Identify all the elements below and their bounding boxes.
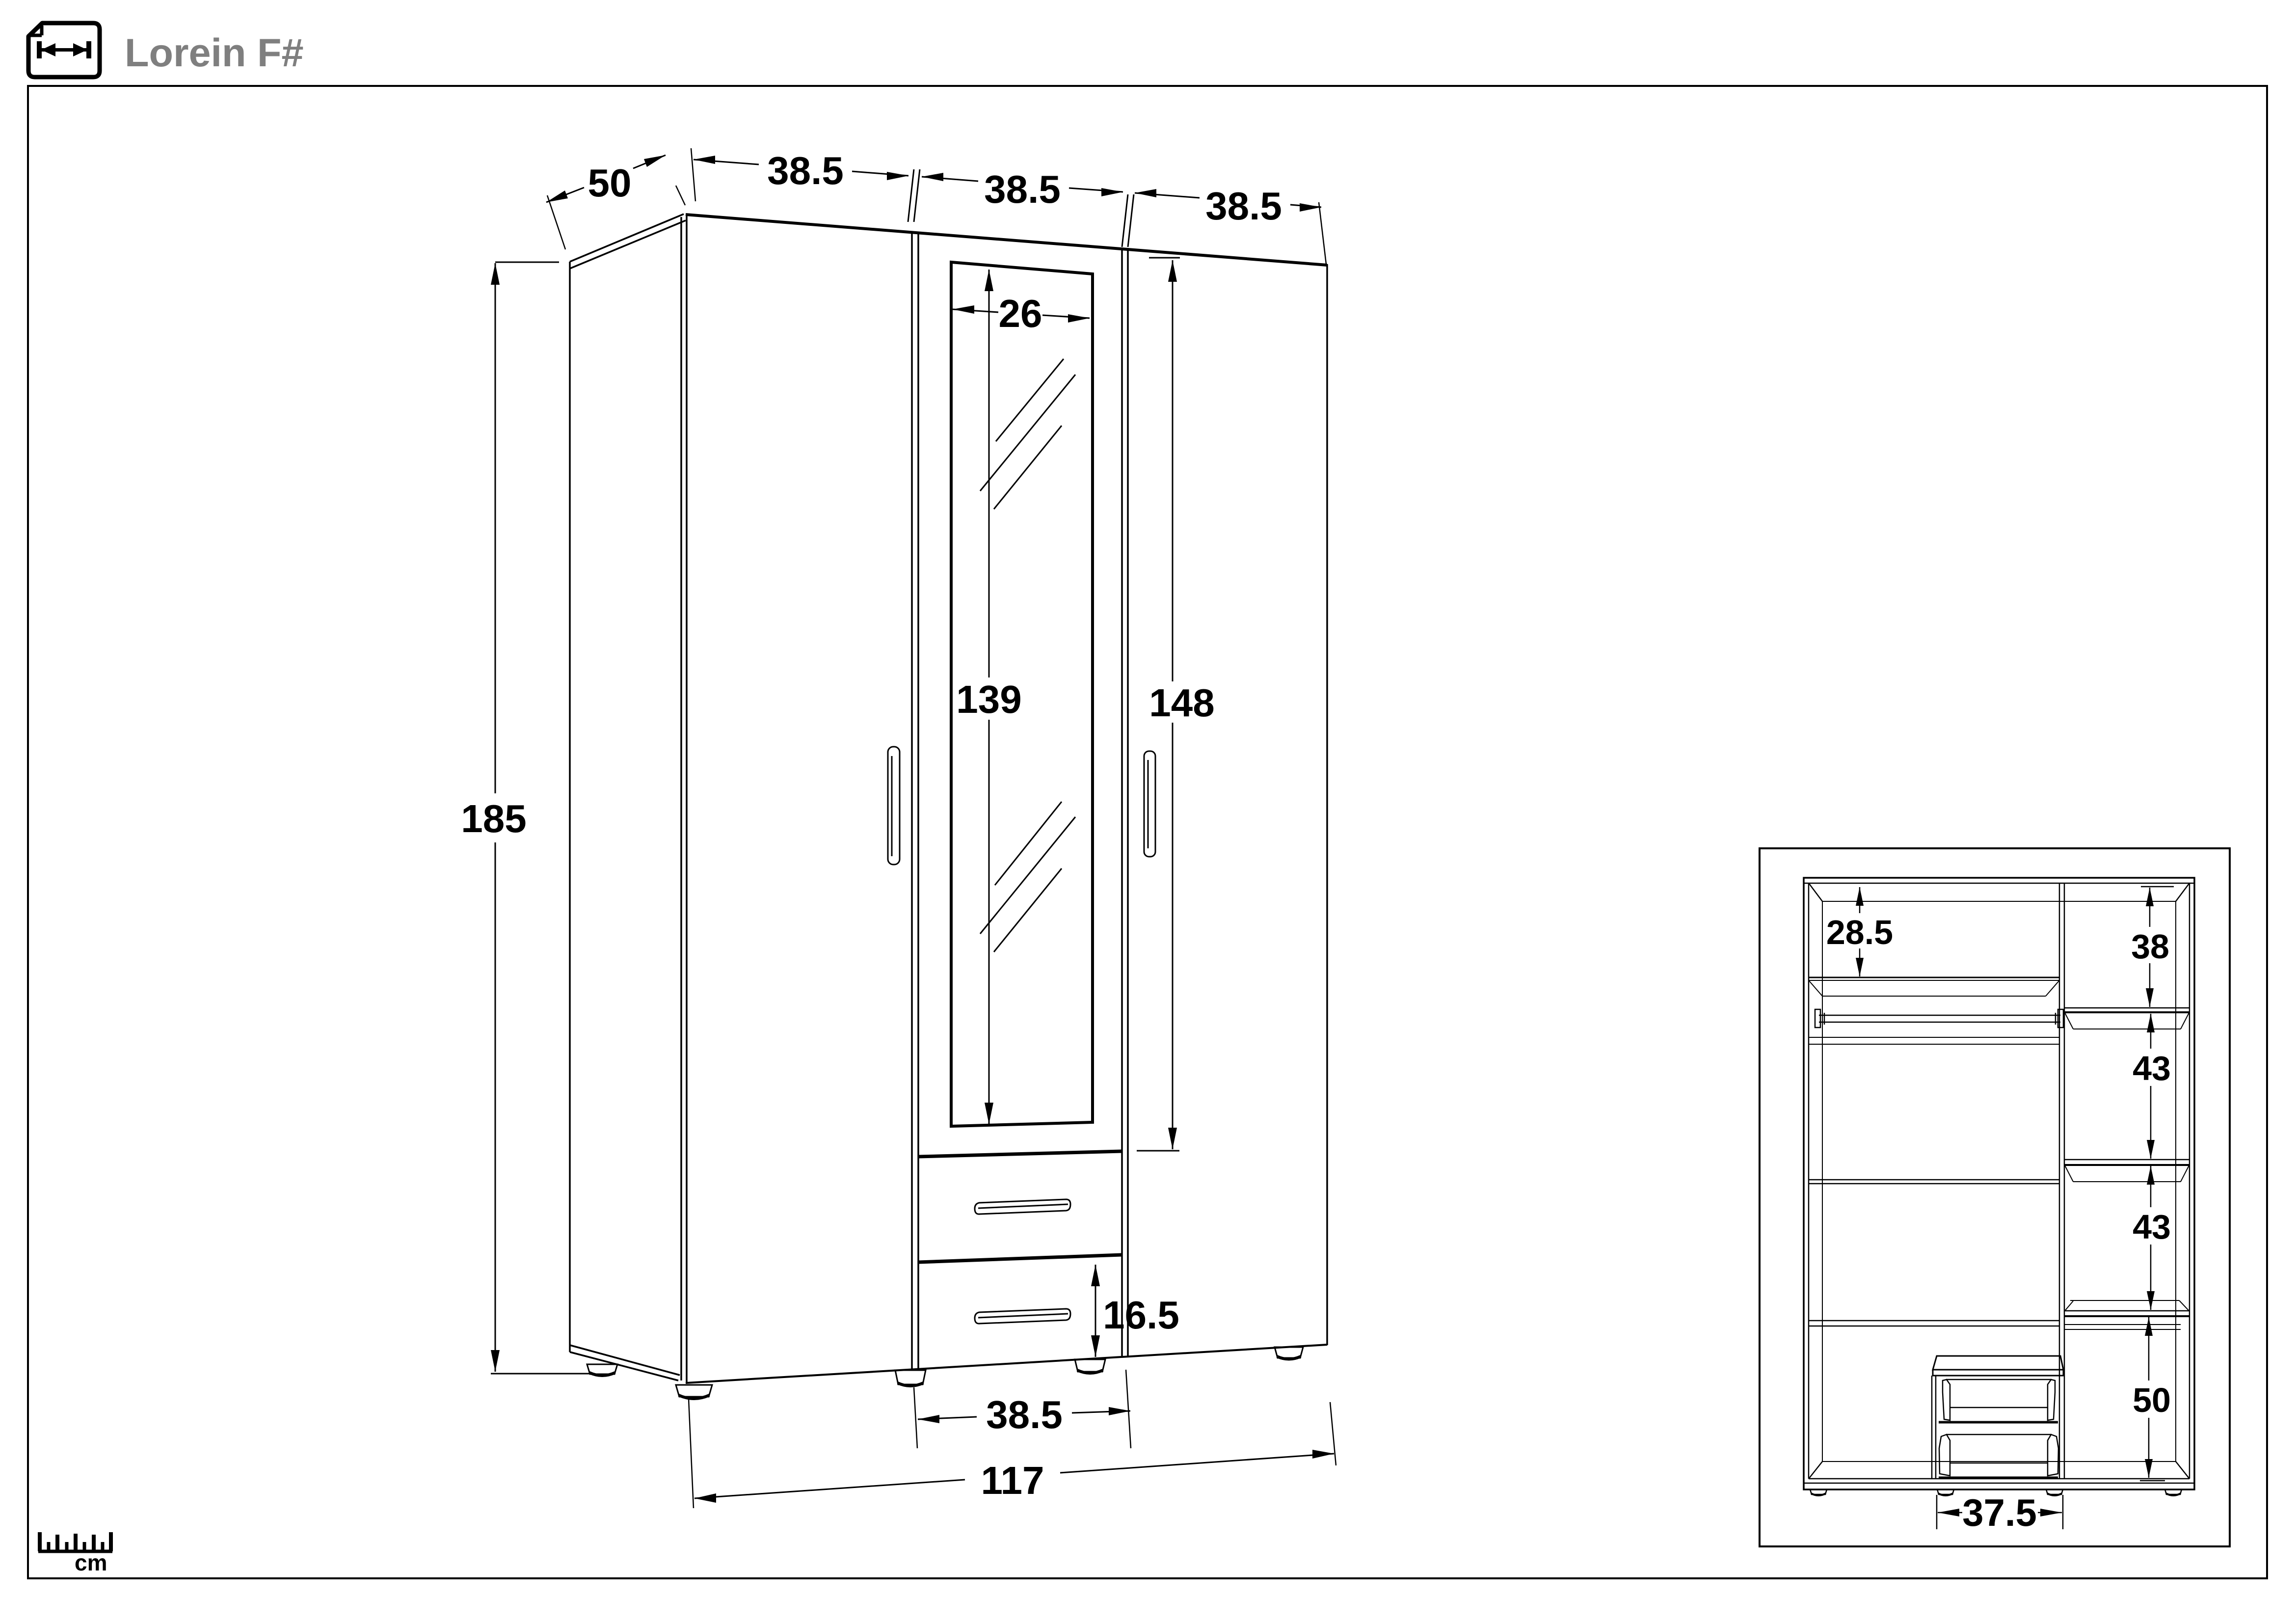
svg-text:16.5: 16.5 <box>1103 1293 1179 1337</box>
svg-text:139: 139 <box>956 677 1021 721</box>
svg-text:117: 117 <box>981 1459 1044 1502</box>
svg-text:26: 26 <box>999 292 1042 335</box>
svg-text:43: 43 <box>2133 1049 2171 1087</box>
svg-text:50: 50 <box>2133 1381 2171 1419</box>
svg-text:38.5: 38.5 <box>1205 184 1282 228</box>
svg-text:37.5: 37.5 <box>1962 1491 2037 1534</box>
svg-text:38.5: 38.5 <box>767 149 844 192</box>
svg-text:38: 38 <box>2131 927 2169 966</box>
svg-text:38.5: 38.5 <box>984 167 1061 211</box>
svg-text:148: 148 <box>1149 681 1214 725</box>
svg-text:Lorein F#: Lorein F# <box>125 31 304 75</box>
svg-text:50: 50 <box>588 161 632 205</box>
svg-text:43: 43 <box>2133 1208 2171 1246</box>
svg-text:185: 185 <box>461 797 526 840</box>
svg-text:38.5: 38.5 <box>986 1393 1063 1436</box>
svg-text:cm: cm <box>75 1550 107 1575</box>
svg-text:28.5: 28.5 <box>1826 913 1893 951</box>
